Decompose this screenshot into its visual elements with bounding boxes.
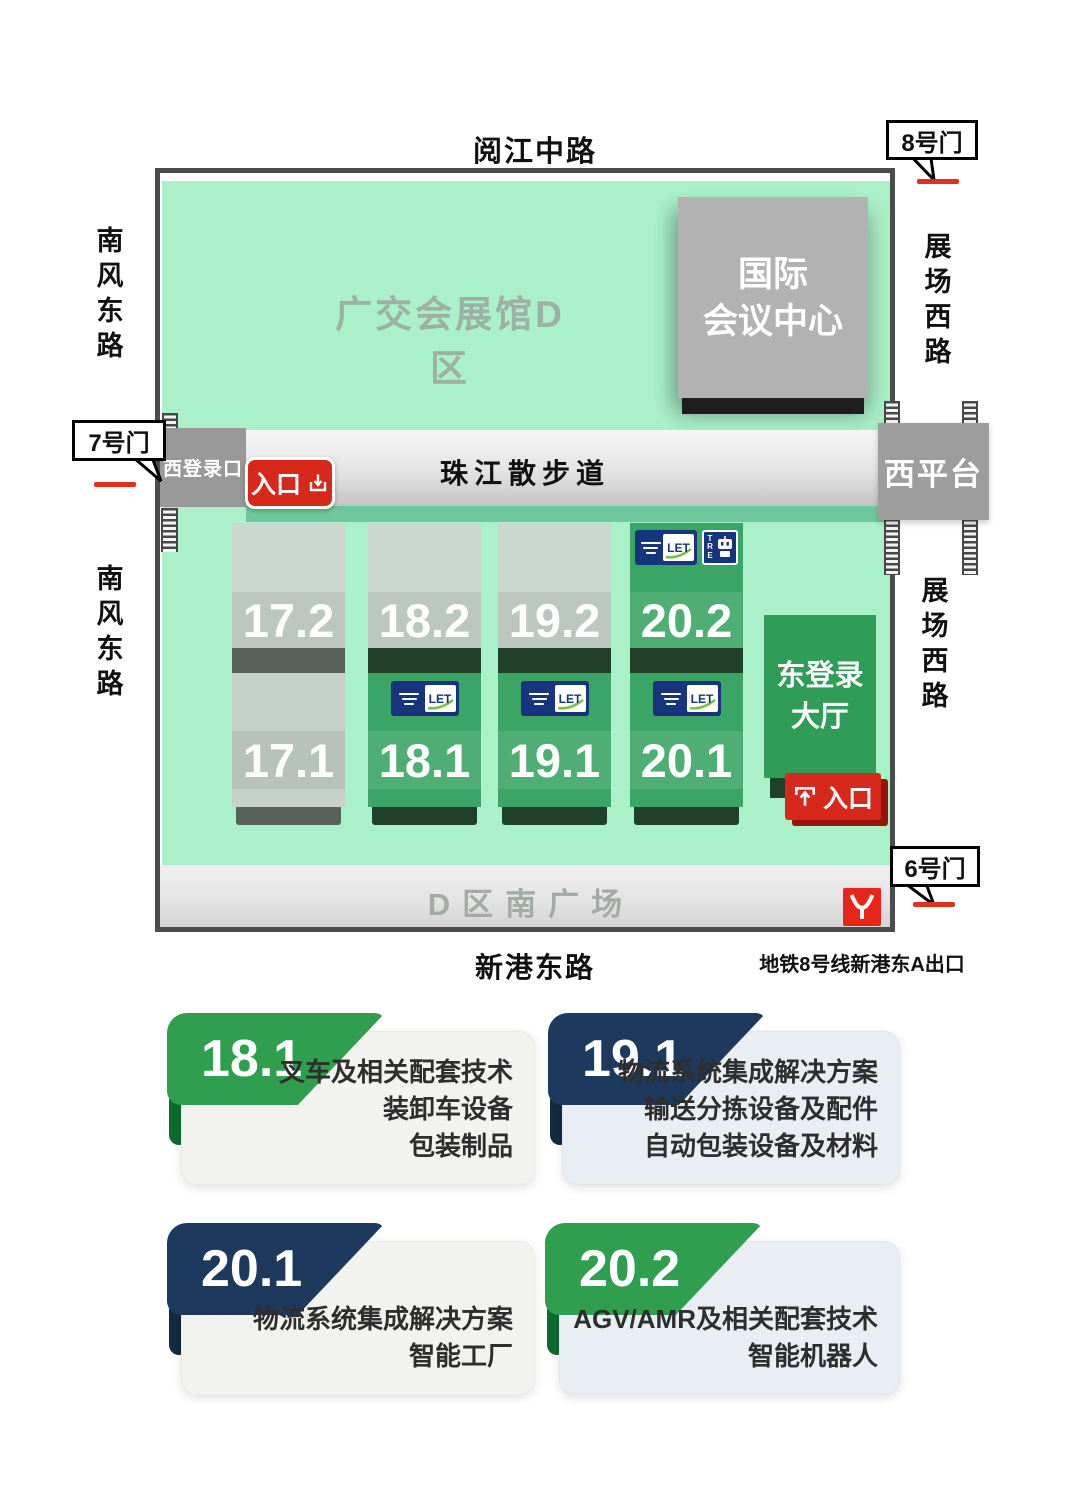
- category-line: 装卸车设备: [279, 1091, 513, 1128]
- tre-robot-icon: [716, 535, 734, 561]
- let-logo-badge: LET: [521, 681, 589, 716]
- hall-17-1: 17.1: [232, 673, 345, 807]
- hall-17-2-number: 17.2: [243, 593, 334, 648]
- hall-19-1: LET 19.1: [498, 673, 611, 807]
- category-line: 物流系统集成解决方案: [253, 1301, 513, 1338]
- legend-card-18-1: 18.1 叉车及相关配套技术 装卸车设备 包装制品: [167, 1013, 535, 1185]
- card-categories: 物流系统集成解决方案 输送分拣设备及配件 自动包装设备及材料: [618, 1054, 878, 1165]
- hall-18-2-number: 18.2: [379, 593, 470, 648]
- gate-8-callout: 8号门: [886, 120, 978, 160]
- let-logo-letters: LET: [429, 692, 452, 706]
- gate-6-marker: [913, 902, 955, 907]
- metro-exit-note: 地铁8号线新港东A出口: [752, 948, 972, 977]
- hall-17-2: 17.2: [232, 523, 345, 648]
- hall-18-shadow: [372, 807, 477, 825]
- let-logo-text-lines: [656, 693, 687, 705]
- east-entrance-label: 入口: [823, 779, 873, 815]
- let-logo-letters: LET: [667, 541, 690, 555]
- hall-19-divider: [498, 648, 611, 673]
- let-logo-text-lines: [638, 542, 663, 554]
- convention-center-line2: 会议中心: [703, 298, 843, 345]
- hall-18-1: LET 18.1: [368, 673, 481, 807]
- west-entrance-badge: 入口: [245, 457, 335, 509]
- card-categories: 叉车及相关配套技术 装卸车设备 包装制品: [279, 1054, 513, 1165]
- category-line: 物流系统集成解决方案: [618, 1054, 878, 1091]
- east-registration-hall: 东登录 大厅: [764, 615, 876, 778]
- gate-6-callout: 6号门: [890, 846, 980, 887]
- gate-7-callout: 7号门: [72, 420, 166, 461]
- hall-20-1: LET 20.1: [630, 673, 743, 807]
- road-label-bottom: 新港东路: [455, 946, 615, 986]
- metro-logo: [843, 888, 881, 926]
- hall-20-2-number: 20.2: [641, 593, 732, 648]
- road-label-right-lower: 展场西路: [920, 574, 950, 714]
- road-label-top: 阅江中路: [455, 128, 615, 164]
- let-logo-badge: LET: [635, 530, 697, 565]
- west-stairs-lower: [161, 508, 178, 552]
- east-entrance-badge: 入口: [785, 773, 881, 820]
- guangzhou-metro-icon: [846, 891, 878, 923]
- west-entrance-label: 入口: [251, 465, 301, 501]
- platform-stairs-bottom-right: [962, 519, 978, 575]
- convention-center-shadow: [682, 398, 864, 414]
- platform-stairs-bottom-left: [884, 519, 900, 575]
- road-label-left-lower: 南风东路: [95, 562, 125, 702]
- hall-18-1-number: 18.1: [379, 733, 470, 788]
- hall-19-shadow: [502, 807, 607, 825]
- let-logo-badge: LET: [653, 681, 721, 716]
- category-line: 包装制品: [279, 1128, 513, 1165]
- hall-18-2: 18.2: [368, 523, 481, 648]
- venue-map-page: 阅江中路 南风东路 南风东路 展场西路 展场西路 新港东路 地铁8号线新港东A出…: [0, 0, 1080, 1511]
- gate-7-marker: [94, 482, 136, 487]
- hall-20-2: LET TRE 20.2: [630, 523, 743, 648]
- legend-card-19-1: 19.1 物流系统集成解决方案 输送分拣设备及配件 自动包装设备及材料: [548, 1013, 900, 1185]
- category-line: 输送分拣设备及配件: [618, 1091, 878, 1128]
- tre-logo-letters: TRE: [706, 535, 714, 561]
- let-logo-letters: LET: [559, 692, 582, 706]
- category-line: 自动包装设备及材料: [618, 1128, 878, 1165]
- hall-19-2-number: 19.2: [509, 593, 600, 648]
- west-checkin-hall: 西登录口: [160, 428, 246, 507]
- road-label-left-upper: 南风东路: [95, 224, 125, 364]
- legend-card-20-1: 20.1 物流系统集成解决方案 智能工厂: [167, 1223, 535, 1395]
- entrance-down-arrow-icon: [307, 472, 329, 494]
- let-logo-letters: LET: [691, 692, 714, 706]
- category-line: AGV/AMR及相关配套技术: [573, 1301, 878, 1338]
- legend-card-20-2: 20.2 AGV/AMR及相关配套技术 智能机器人: [545, 1223, 900, 1395]
- east-hall-line2: 大厅: [791, 697, 849, 738]
- promenade-edge: [246, 506, 890, 522]
- hall-18-divider: [368, 648, 481, 673]
- hall-20-1-number: 20.1: [641, 733, 732, 788]
- area-d-label: 广交会展馆D区: [320, 284, 580, 392]
- convention-center-line1: 国际: [738, 251, 808, 298]
- east-hall-line1: 东登录: [776, 656, 863, 697]
- hall-19-2: 19.2: [498, 523, 611, 648]
- hall-19-1-number: 19.1: [509, 733, 600, 788]
- hall-20-shadow: [634, 807, 739, 825]
- west-platform: 西平台: [878, 423, 989, 520]
- gate-8-marker: [917, 179, 959, 184]
- card-categories: 物流系统集成解决方案 智能工厂: [253, 1301, 513, 1375]
- hall-17-1-number: 17.1: [243, 733, 334, 788]
- category-line: 智能工厂: [253, 1338, 513, 1375]
- let-logo-text-lines: [394, 693, 425, 705]
- hall-17-shadow: [236, 807, 341, 825]
- south-square-label: D区南广场: [160, 879, 890, 924]
- convention-center: 国际 会议中心: [678, 197, 868, 398]
- category-line: 智能机器人: [573, 1338, 878, 1375]
- let-logo-text-lines: [524, 693, 555, 705]
- let-logo-badge: LET: [391, 681, 459, 716]
- category-line: 叉车及相关配套技术: [279, 1054, 513, 1091]
- hall-20-divider: [630, 648, 743, 673]
- tre-logo-badge: TRE: [702, 530, 738, 565]
- card-categories: AGV/AMR及相关配套技术 智能机器人: [573, 1301, 878, 1375]
- road-label-right-upper: 展场西路: [923, 230, 953, 370]
- entrance-up-arrow-icon: [793, 785, 817, 809]
- hall-17-divider: [232, 648, 345, 673]
